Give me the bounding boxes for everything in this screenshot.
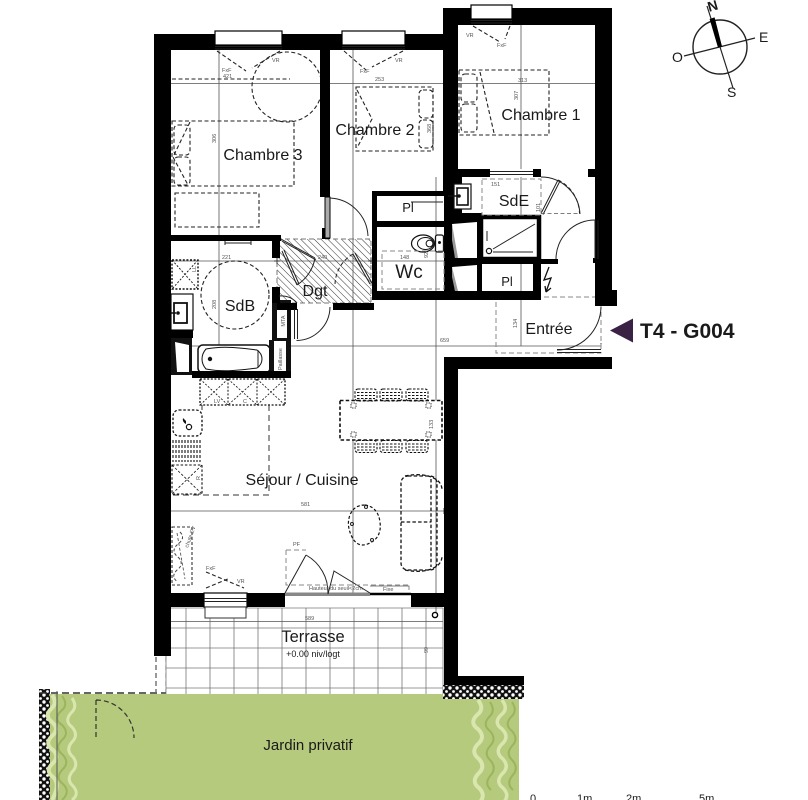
svg-text:221: 221 [222,255,231,261]
svg-text:Hauteur du seuil<2cm: Hauteur du seuil<2cm [309,586,363,592]
svg-text:LV: LV [214,399,221,405]
svg-text:306: 306 [212,134,218,143]
svg-text:VR: VR [466,33,474,39]
svg-text:253: 253 [375,77,384,83]
svg-text:C: C [243,399,247,405]
svg-text:Séjour / Cuisine: Séjour / Cuisine [246,472,359,489]
svg-text:92: 92 [424,252,430,258]
svg-text:VR: VR [395,58,403,64]
svg-text:5m: 5m [699,793,714,800]
svg-text:E: E [759,29,768,45]
svg-text:134: 134 [513,319,519,328]
svg-text:FxF: FxF [206,566,216,572]
svg-text:+0.00 niv/logt: +0.00 niv/logt [286,649,340,659]
svg-text:Paillasse: Paillasse [278,348,284,370]
svg-text:101: 101 [536,203,542,212]
svg-text:581: 581 [301,502,310,508]
svg-text:Chambre 3: Chambre 3 [223,147,302,164]
svg-text:151: 151 [491,182,500,188]
svg-text:659: 659 [440,338,449,344]
svg-text:Chambre 2: Chambre 2 [335,122,414,139]
svg-text:SdB: SdB [225,298,255,315]
svg-text:307: 307 [514,91,520,100]
svg-text:VR: VR [237,579,245,585]
svg-text:Entrée: Entrée [525,321,572,338]
svg-text:0: 0 [530,793,536,800]
svg-text:T4 - G004: T4 - G004 [640,320,735,343]
svg-text:148: 148 [400,255,409,261]
svg-text:2m: 2m [626,793,641,800]
svg-text:R: R [196,476,202,480]
svg-text:VR: VR [272,58,280,64]
svg-text:589: 589 [305,616,314,622]
svg-text:S: S [727,84,736,100]
svg-text:PF: PF [293,542,301,548]
svg-text:Terrasse: Terrasse [281,628,344,646]
svg-text:133: 133 [429,420,435,429]
svg-text:208: 208 [212,300,218,309]
svg-text:99: 99 [424,647,430,653]
svg-text:SdE: SdE [499,193,529,210]
svg-text:Chambre 1: Chambre 1 [501,107,580,124]
svg-text:Fixe: Fixe [383,587,393,593]
svg-text:421: 421 [223,74,232,80]
svg-text:LL: LL [192,266,198,272]
svg-text:O: O [672,49,683,65]
svg-text:240: 240 [318,255,327,261]
svg-text:Dgt: Dgt [303,283,328,300]
svg-text:FxF: FxF [360,69,370,75]
svg-text:Jardin privatif: Jardin privatif [263,737,353,754]
svg-text:Wc: Wc [395,262,422,283]
svg-text:MTA: MTA [281,315,287,327]
svg-text:1m: 1m [577,793,592,800]
svg-text:FxF: FxF [497,43,507,49]
svg-text:368: 368 [427,124,433,133]
svg-text:Pl: Pl [501,274,513,289]
svg-text:313: 313 [518,78,527,84]
